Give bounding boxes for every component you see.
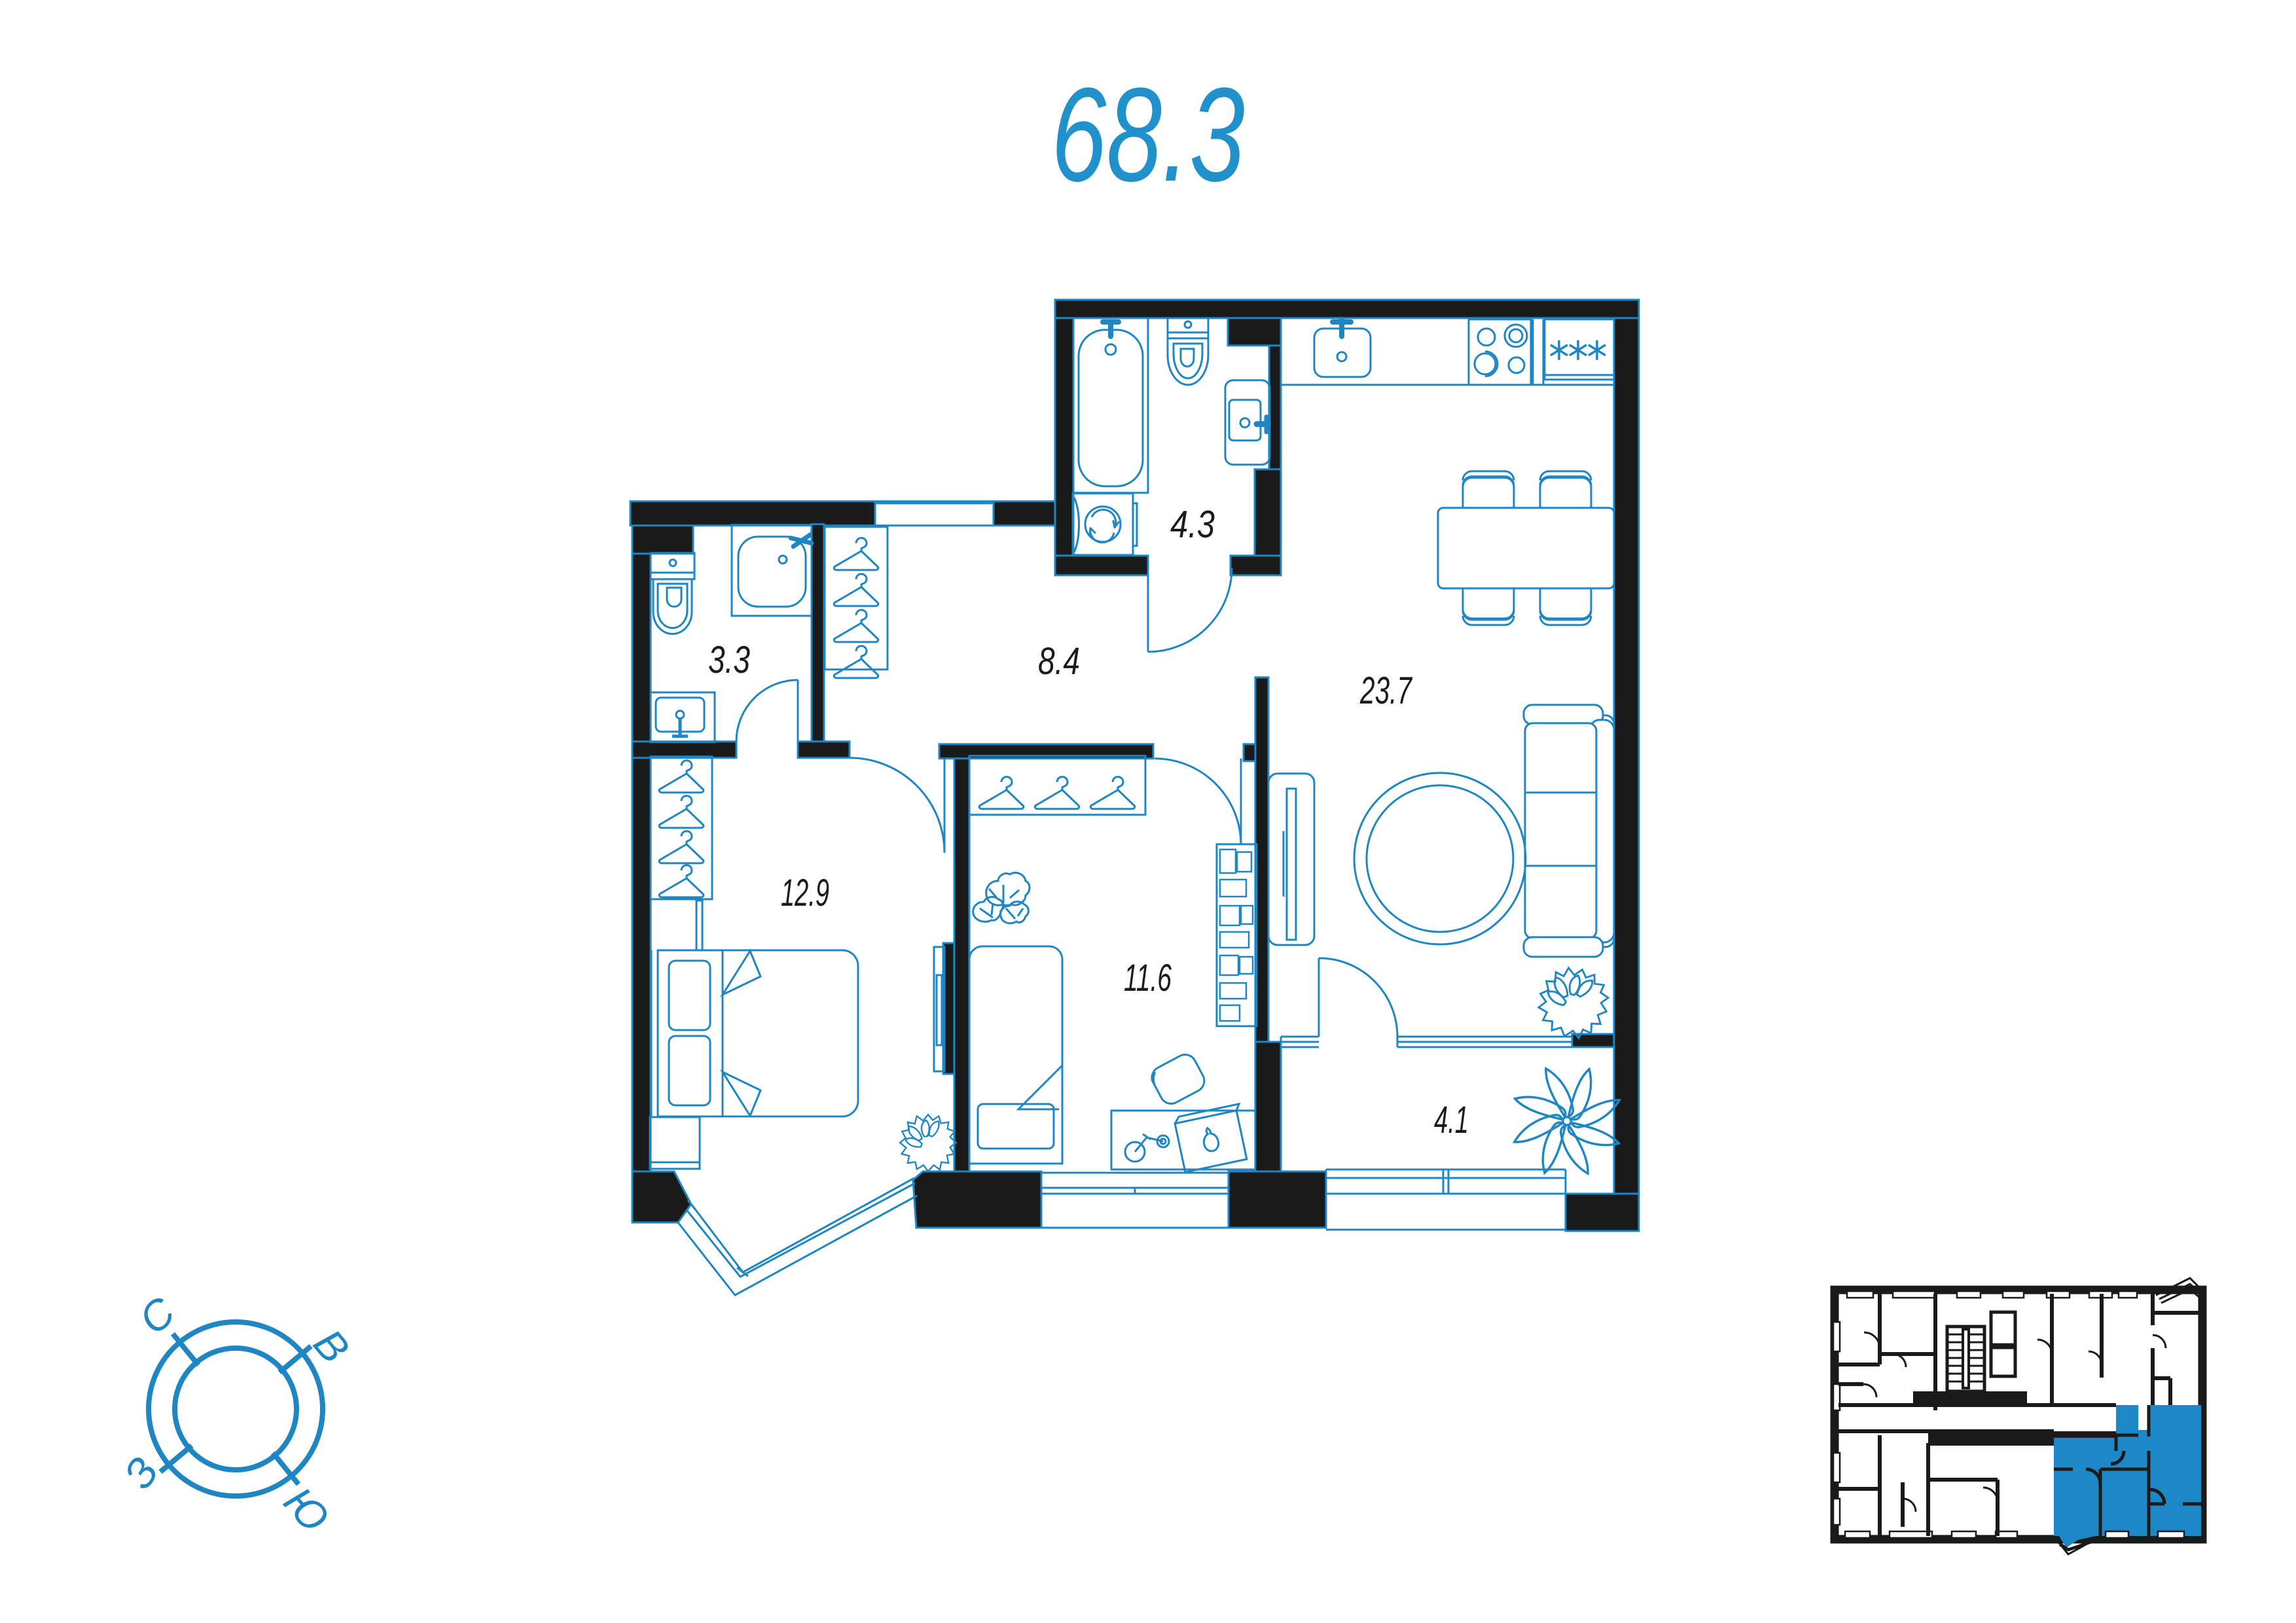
svg-text:68.3: 68.3 xyxy=(1051,60,1245,209)
svg-text:3.3: 3.3 xyxy=(708,639,750,681)
svg-text:11.6: 11.6 xyxy=(1124,957,1172,999)
svg-text:4.3: 4.3 xyxy=(1170,503,1215,546)
svg-text:4.1: 4.1 xyxy=(1434,1099,1469,1141)
svg-text:12.9: 12.9 xyxy=(781,872,829,914)
svg-text:8.4: 8.4 xyxy=(1038,640,1080,683)
svg-text:23.7: 23.7 xyxy=(1359,669,1413,712)
